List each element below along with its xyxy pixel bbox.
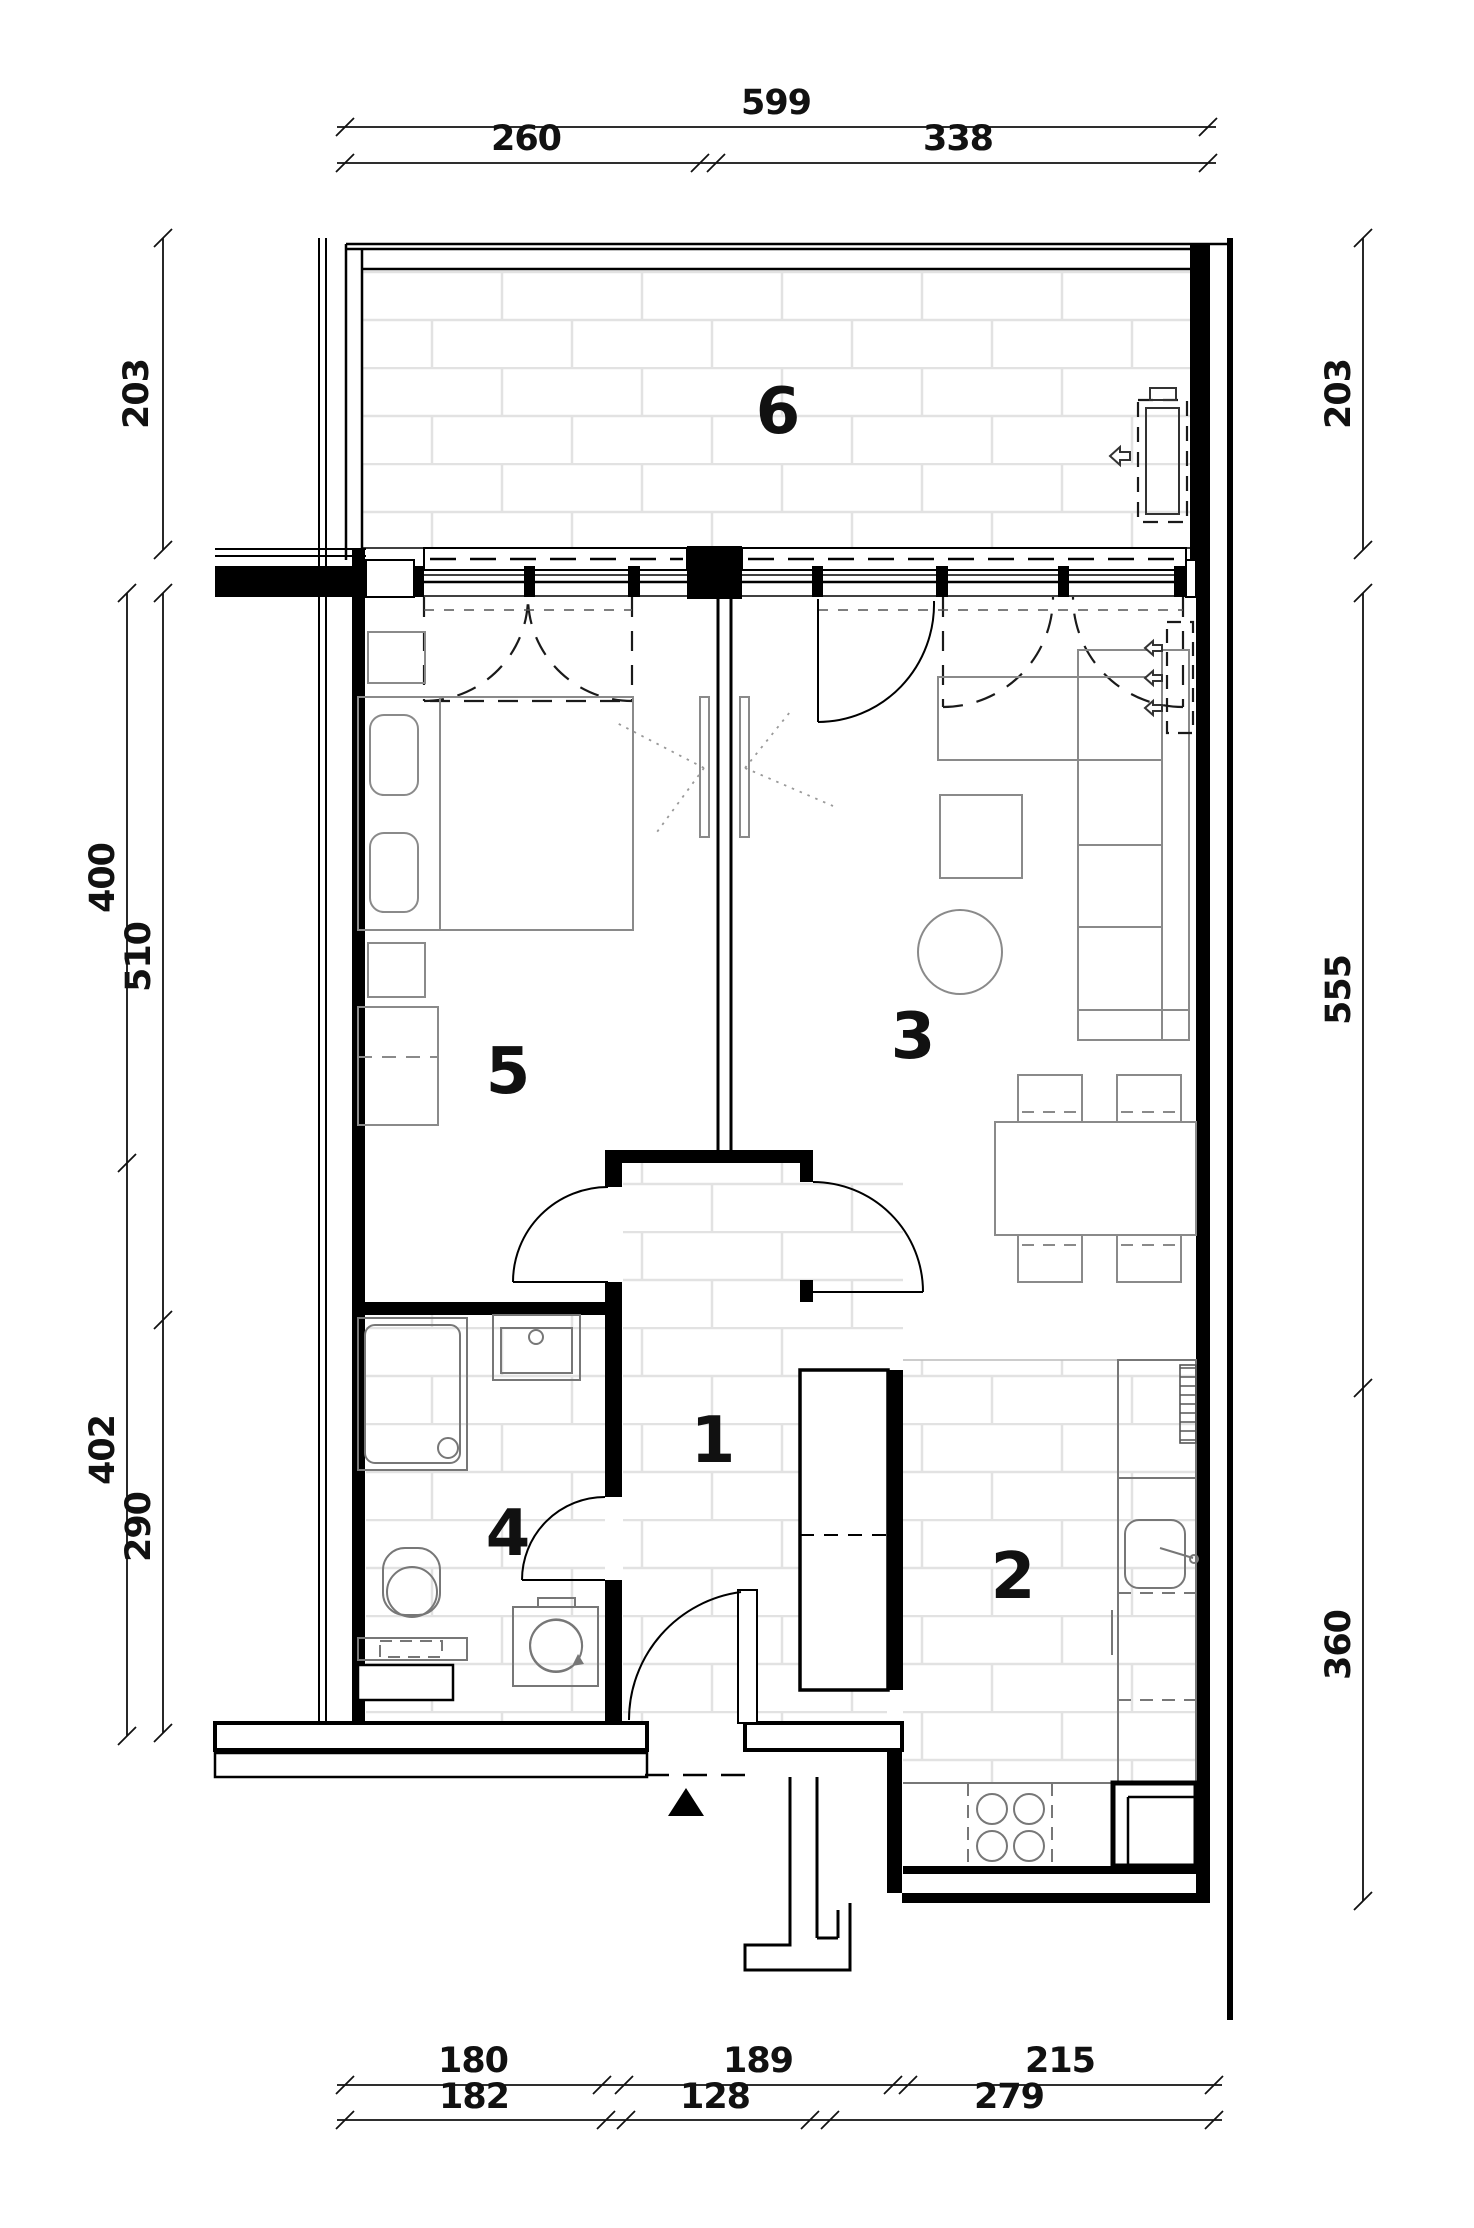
- bed: [358, 697, 633, 930]
- chair: [1018, 1075, 1082, 1122]
- sliding-panels: [615, 697, 833, 837]
- wall-hallway-top: [605, 1150, 813, 1163]
- entry-marker-icon: [668, 1788, 704, 1816]
- dim-left-402: 402: [83, 1415, 123, 1485]
- window-pier: [687, 546, 742, 599]
- facade-line-left: [319, 238, 326, 1777]
- cabinet-back-wall: [888, 1370, 903, 1690]
- ledge-top-left-lines: [215, 549, 366, 556]
- kitchen-bottom-counter: [903, 1783, 1196, 1866]
- kitchen-corner-unit: [1113, 1783, 1196, 1866]
- pillow-bottom: [370, 833, 418, 912]
- living-room-furniture: [918, 622, 1196, 1282]
- window-band: [362, 546, 1196, 599]
- radiator-vent: [1145, 622, 1193, 733]
- kitchen-floor: [903, 1360, 1196, 1783]
- hallway-floor: [623, 1302, 800, 1690]
- balcony-door-bedroom: [424, 597, 632, 701]
- wall-bottom-left: [215, 1723, 647, 1750]
- wall-living-door-jamb: [800, 1280, 813, 1302]
- window-stub-left: [366, 560, 414, 597]
- dim-right-203: 203: [1319, 359, 1359, 429]
- dim-left-400: 400: [83, 843, 123, 913]
- balcony-parapet-left: [346, 244, 362, 560]
- room-label-kitchen: 2: [991, 1540, 1036, 1614]
- balcony-door-living: [943, 597, 1183, 707]
- dim-left-510: 510: [119, 922, 159, 992]
- wall-outer-bottom-right: [902, 1893, 1202, 1903]
- wall-bedroom-bottom: [365, 1302, 622, 1315]
- room-label-bedroom: 5: [486, 1035, 531, 1109]
- chair: [1018, 1235, 1082, 1282]
- wall-bottom-left-lip: [215, 1753, 647, 1777]
- ledge-top-left: [215, 566, 352, 597]
- chair-tuck-lines: [1022, 1112, 1177, 1245]
- bedroom-door: [513, 1187, 608, 1282]
- window-stub-right: [1186, 560, 1196, 597]
- wall-right: [1196, 560, 1210, 1903]
- balcony-single-door: [818, 599, 934, 722]
- boundary-line-right: [1227, 238, 1233, 2020]
- dim-top: [336, 118, 1217, 172]
- dim-right-360: 360: [1319, 1610, 1359, 1680]
- wardrobe: [358, 1007, 438, 1125]
- wall-drop-kitchen-left: [887, 1750, 902, 1893]
- dim-top-b: 338: [923, 119, 993, 159]
- dining-set: [995, 1075, 1196, 1282]
- chair: [1117, 1075, 1181, 1122]
- hallway-floor-upper: [623, 1163, 903, 1302]
- room-label-balcony: 6: [756, 375, 801, 449]
- bedroom-furniture: [358, 632, 833, 1125]
- balcony-parapet-top: [346, 244, 1233, 269]
- dim-bottom-182: 182: [439, 2077, 509, 2117]
- vestibule-walls: [745, 1777, 850, 1970]
- dim-top-total: 599: [741, 83, 811, 123]
- nightstand-top: [368, 632, 425, 683]
- stove: [968, 1783, 1052, 1866]
- room-label-hallway: 1: [691, 1404, 736, 1478]
- chair: [1117, 1235, 1181, 1282]
- dim-bottom-189: 189: [723, 2041, 793, 2081]
- pillow-top: [370, 715, 418, 795]
- wall-bedroom-living: [718, 597, 731, 1150]
- hall-cabinet: [800, 1370, 903, 1690]
- panel-sight-lines: [615, 712, 833, 832]
- pouf: [918, 910, 1002, 994]
- dim-left-203: 203: [117, 359, 157, 429]
- dim-bottom-180: 180: [438, 2041, 508, 2081]
- hallway-floor-nook: [800, 1302, 903, 1370]
- room-label-bathroom: 4: [486, 1497, 531, 1571]
- wall-bath-right-lower: [605, 1580, 622, 1723]
- fridge-hatch: [1180, 1365, 1196, 1443]
- wall-right-balcony: [1190, 243, 1210, 560]
- floor-plan-page: 599 260 338 203 400 510 402 290 203 555 …: [0, 0, 1474, 2228]
- dim-left-290: 290: [119, 1492, 159, 1562]
- nightstand-bottom: [368, 943, 425, 997]
- dim-bottom-279: 279: [974, 2077, 1044, 2117]
- toilet-pedestal: [358, 1665, 453, 1700]
- wall-bath-right-upper: [605, 1315, 622, 1497]
- wall-nib-right: [800, 1163, 813, 1182]
- wall-bottom-mid: [745, 1723, 902, 1750]
- dim-right-555: 555: [1319, 955, 1359, 1025]
- sofa-chaise: [938, 677, 1162, 760]
- dining-table: [995, 1122, 1196, 1235]
- airflow-arrow-icons: [1145, 641, 1162, 715]
- dim-bottom-215: 215: [1025, 2041, 1095, 2081]
- dim-bottom-128: 128: [680, 2077, 750, 2117]
- dim-top-a: 260: [491, 119, 561, 159]
- room-label-living: 3: [891, 1000, 936, 1074]
- coffee-table: [940, 795, 1022, 878]
- wall-nib-left: [605, 1163, 622, 1187]
- floor-plan-canvas: 599 260 338 203 400 510 402 290 203 555 …: [0, 0, 1474, 2228]
